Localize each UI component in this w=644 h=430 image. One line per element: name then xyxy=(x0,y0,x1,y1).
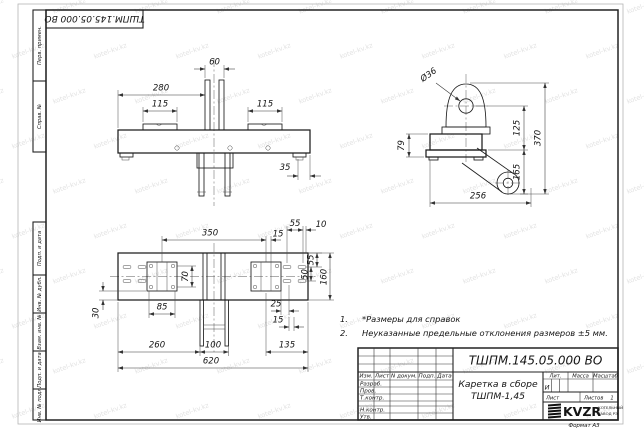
dim-50: 50 xyxy=(301,269,311,280)
margin-column-top: Перв. примен. Справ. № xyxy=(33,10,46,152)
side-view-dimensions: Ø36 79 125 165 370 256 xyxy=(397,65,549,207)
side-view: Ø36 79 125 165 370 256 xyxy=(397,65,549,207)
dim-55-top: 55 xyxy=(290,219,301,229)
dim-115-right: 115 xyxy=(257,100,273,110)
tb-lit-label: Лит. xyxy=(549,373,562,379)
format-label: Формат А3 xyxy=(568,423,600,429)
dim-260: 260 xyxy=(149,341,165,351)
margin-label-podp-data-1: Подп. и дата xyxy=(37,231,43,266)
dim-15-bottom: 15 xyxy=(273,316,284,326)
dim-620: 620 xyxy=(203,357,219,367)
tb-sheets-label: Листов xyxy=(583,396,603,402)
note-2-text: Неуказанные предельные отклонения размер… xyxy=(362,328,608,338)
tb-row-utv: Утв. xyxy=(360,415,372,421)
tb-sheet-label: Лист xyxy=(545,396,560,402)
plan-view: 350 15 55 10 70 55 xyxy=(92,219,335,372)
dim-30: 30 xyxy=(92,308,102,319)
stamp-designation: ТШПМ.145.05.000 ВО xyxy=(44,13,144,23)
note-1-number: 1. xyxy=(340,314,348,324)
tb-row-prov: Пров. xyxy=(360,389,376,395)
tb-row-nkontr: Н.контр. xyxy=(360,408,385,414)
dim-160: 160 xyxy=(320,269,330,285)
dim-115-left: 115 xyxy=(152,100,168,110)
dim-280: 280 xyxy=(153,84,169,94)
margin-label-inv-podl: Инв. № подл. xyxy=(37,387,43,423)
tb-name-line2: ТШПМ-1,45 xyxy=(471,391,525,402)
margin-label-vzam-inv: Взам. инв. № xyxy=(37,314,43,349)
logo-text: KVZR xyxy=(563,404,601,419)
engineering-drawing: ТШПМ.145.05.000 ВО Перв. примен. Справ. … xyxy=(0,0,644,430)
note-2-number: 2. xyxy=(340,328,348,338)
margin-column-bottom: Подп. и дата Инв. № дубл. Взам. инв. № П… xyxy=(33,222,46,422)
tb-name-line1: Каретка в сборе xyxy=(458,379,538,390)
dim-135: 135 xyxy=(279,341,295,351)
margin-label-perv-primen: Перв. примен. xyxy=(37,26,43,65)
tb-row-tkontr: Т.контр. xyxy=(360,396,384,402)
tb-lit-value: И xyxy=(545,384,550,392)
tb-mass-label: Масса xyxy=(572,373,589,379)
dim-60: 60 xyxy=(209,58,220,68)
dim-10: 10 xyxy=(316,220,327,230)
dim-dia36: Ø36 xyxy=(417,65,439,85)
logo-subtext-1: КОТЕЛЬНЫЙ xyxy=(598,405,623,410)
dim-70: 70 xyxy=(181,271,191,282)
front-view-dimensions: 60 280 115 115 35 xyxy=(118,58,321,181)
notes: 1. *Размеры для справок 2. Неуказанные п… xyxy=(340,314,608,338)
dim-35: 35 xyxy=(280,163,291,173)
tb-header-izm: Изм. xyxy=(359,374,372,380)
drawing-sheet: kotel-kv.kzkotel-kv.kzkotel-kv.kzkotel-k… xyxy=(0,0,644,430)
dim-55-right: 55 xyxy=(307,255,317,266)
dim-256: 256 xyxy=(470,192,487,202)
dim-165: 165 xyxy=(513,164,523,180)
plan-view-dimensions: 350 15 55 10 70 55 xyxy=(92,219,335,372)
company-logo: KVZR xyxy=(548,404,601,419)
tb-scale-label: Масштаб xyxy=(593,373,618,379)
margin-label-sprav-no: Справ. № xyxy=(37,104,43,129)
title-block: Изм. Лист N докум. Подп. Дата Разраб. Пр… xyxy=(358,348,623,429)
dim-100: 100 xyxy=(205,341,221,351)
dim-85: 85 xyxy=(157,303,168,313)
margin-label-podp-data-2: Подп. и дата xyxy=(37,352,43,387)
tb-header-ndokum: N докум. xyxy=(391,374,417,380)
tb-header-data: Дата xyxy=(436,374,452,380)
tb-header-podp: Подп. xyxy=(419,374,436,380)
front-view: 60 280 115 115 35 xyxy=(118,58,321,207)
note-1-text: *Размеры для справок xyxy=(362,314,460,324)
dim-370: 370 xyxy=(534,130,544,146)
margin-label-inv-dubl: Инв. № дубл. xyxy=(37,276,43,312)
dim-350: 350 xyxy=(202,229,218,239)
tb-designation: ТШПМ.145.05.000 ВО xyxy=(469,354,603,368)
logo-subtext-2: ЗАВОД РЭ xyxy=(598,411,618,416)
top-corner-stamp: ТШПМ.145.05.000 ВО xyxy=(44,10,144,28)
dim-125: 125 xyxy=(513,120,523,136)
dim-79: 79 xyxy=(397,140,407,151)
tb-sheets-value: 1 xyxy=(610,396,613,402)
dim-15-top: 15 xyxy=(273,230,284,240)
tb-row-razrab: Разраб. xyxy=(360,382,382,388)
spring-icon xyxy=(548,405,561,418)
dim-25: 25 xyxy=(271,300,282,310)
tb-header-list: Лист xyxy=(374,374,390,380)
